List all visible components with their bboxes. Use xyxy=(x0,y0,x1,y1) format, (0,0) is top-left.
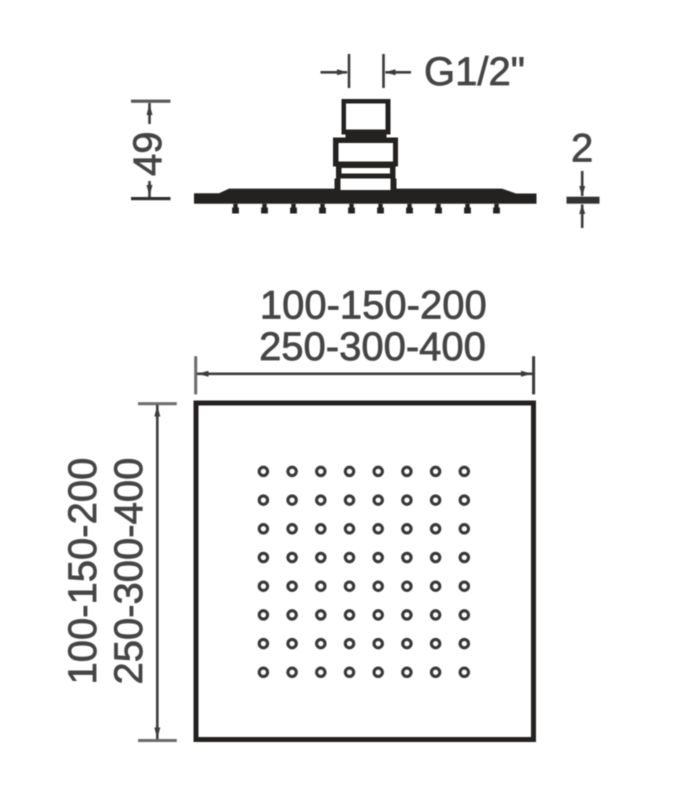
svg-text:G1/2": G1/2" xyxy=(424,50,525,94)
svg-text:100-150-200: 100-150-200 xyxy=(260,284,487,328)
svg-text:250-300-400: 250-300-400 xyxy=(107,458,151,685)
svg-text:49: 49 xyxy=(126,132,170,177)
svg-text:2: 2 xyxy=(571,127,593,171)
svg-text:250-300-400: 250-300-400 xyxy=(259,325,486,369)
svg-text:100-150-200: 100-150-200 xyxy=(61,458,105,685)
